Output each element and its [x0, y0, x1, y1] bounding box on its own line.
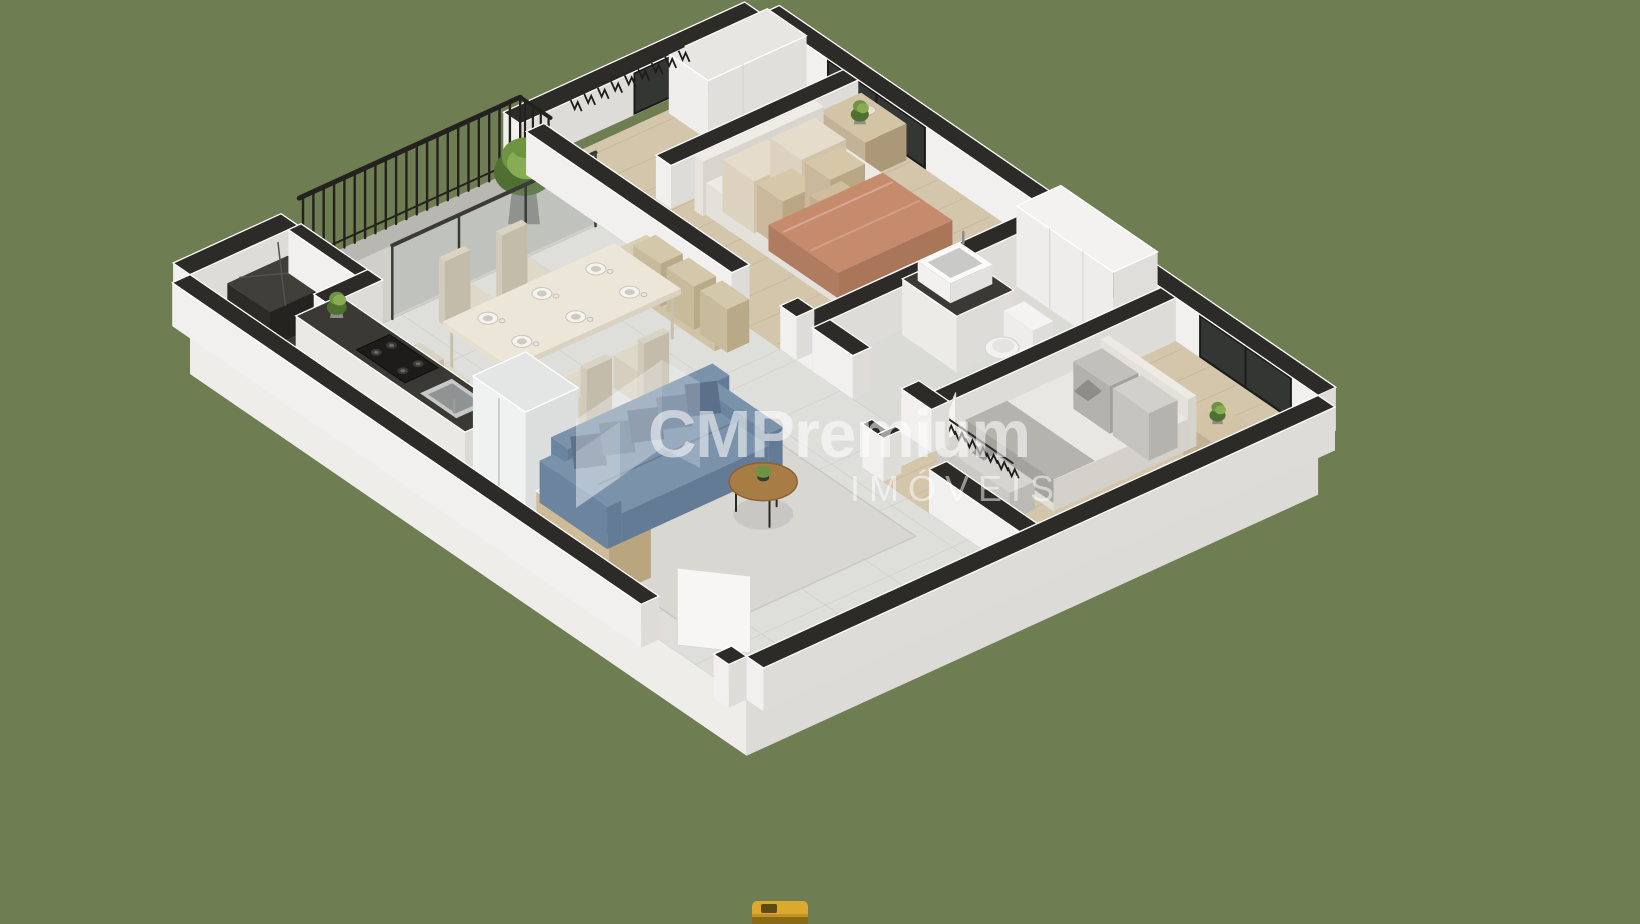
- apartment-3d-plan: [0, 0, 1640, 924]
- construction-toy-icon: [752, 901, 808, 924]
- floorplan-render: CMPremium IMÓVEIS: [0, 0, 1640, 924]
